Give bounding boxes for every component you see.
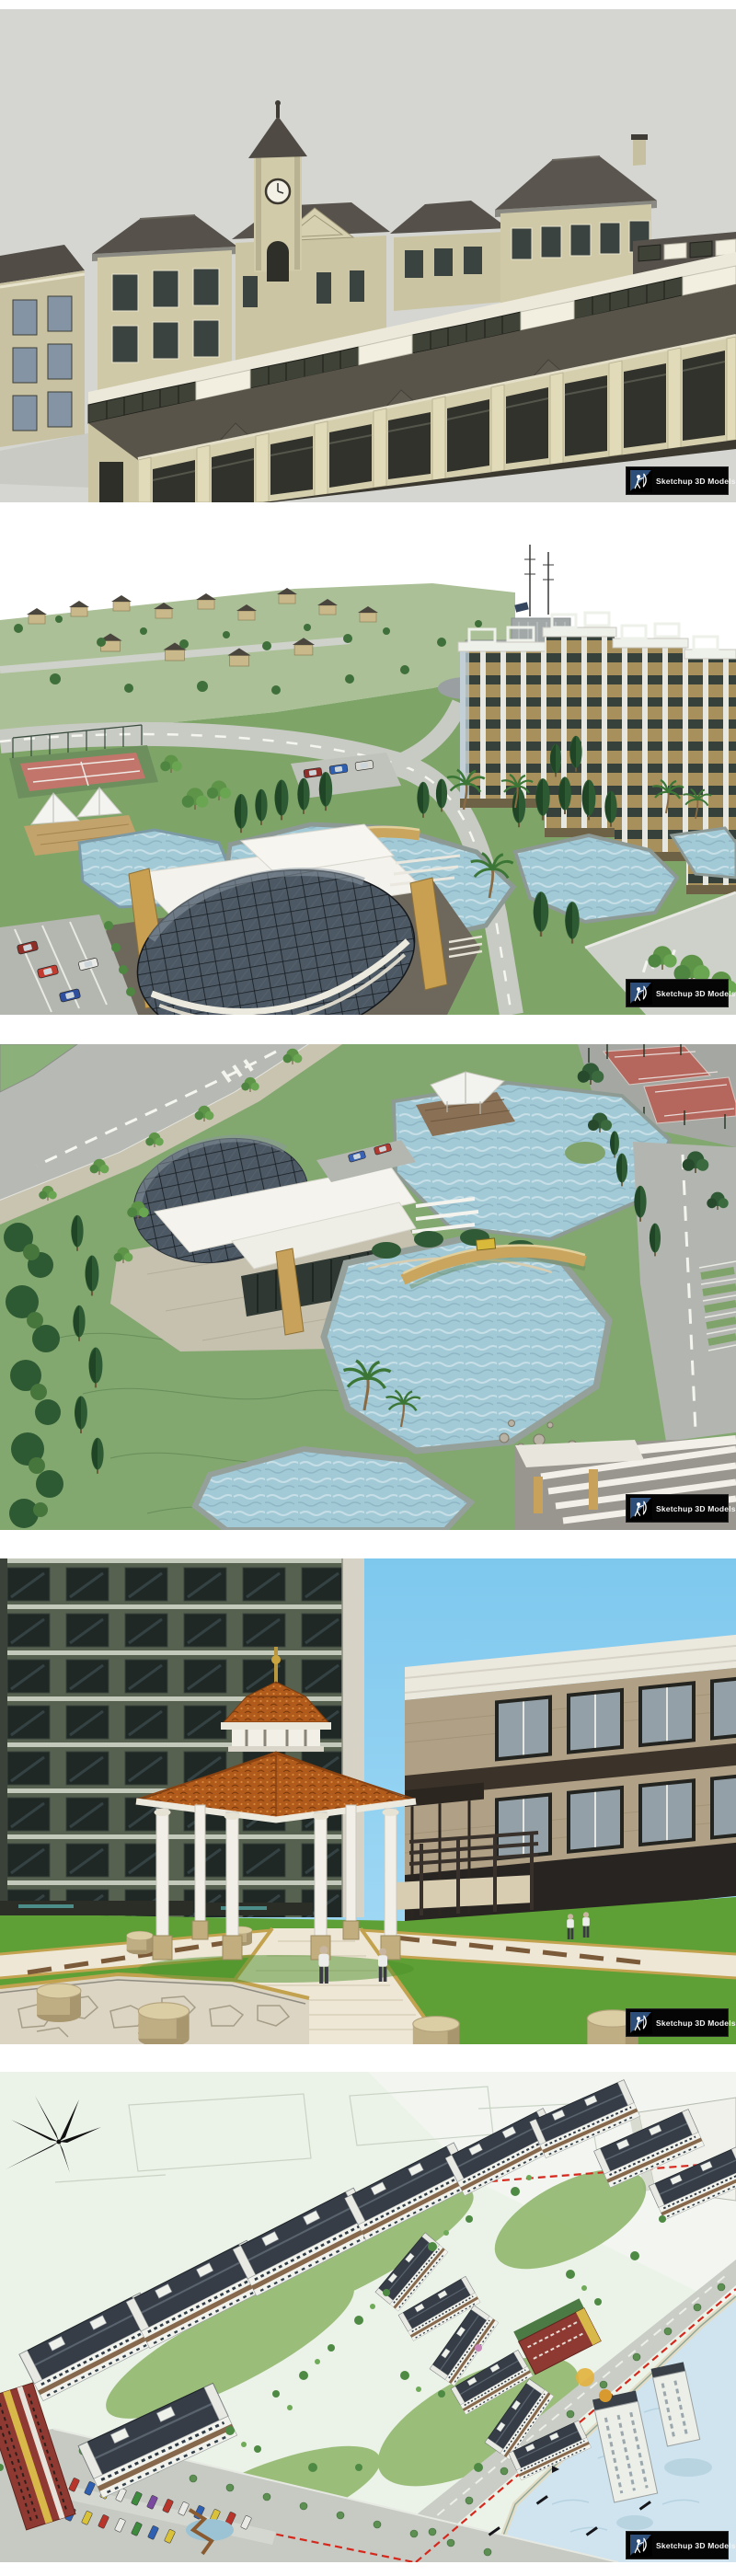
sketchup-watermark-badge: Sketchup 3D Models (626, 2008, 729, 2037)
gallery-image-courtyard-gazebo[interactable]: Sketchup 3D Models (0, 1558, 736, 2044)
sketchup-watermark-badge: Sketchup 3D Models (626, 466, 729, 495)
watermark-label: Sketchup 3D Models (656, 2541, 736, 2550)
render-classical-street (0, 9, 736, 502)
watermark-label: Sketchup 3D Models (656, 2018, 736, 2028)
sketchup-archer-logo-icon (629, 2011, 652, 2034)
back-building-left (0, 245, 85, 447)
sketchup-watermark-badge: Sketchup 3D Models (626, 979, 729, 1007)
sketchup-archer-logo-icon (629, 1497, 652, 1520)
render-courtyard-gazebo (0, 1558, 736, 2044)
tower-c (613, 624, 688, 861)
watermark-label: Sketchup 3D Models (656, 989, 736, 998)
gallery-image-clubhouse-pools[interactable]: Sketchup 3D Models (0, 1044, 736, 1530)
render-riverside-masterplan (0, 2072, 736, 2562)
watermark-label: Sketchup 3D Models (656, 1504, 736, 1513)
sketchup-watermark-badge: Sketchup 3D Models (626, 1494, 729, 1523)
gallery-image-community-lagoon[interactable]: Sketchup 3D Models (0, 532, 736, 1015)
gazebo-shadow (138, 1955, 414, 1983)
gallery-image-riverside-masterplan[interactable]: Sketchup 3D Models (0, 2072, 736, 2562)
watermark-label: Sketchup 3D Models (656, 477, 736, 486)
render-clubhouse-pools (0, 1044, 736, 1530)
gold-finial (271, 1655, 281, 1664)
gallery-image-classical-street[interactable]: Sketchup 3D Models (0, 9, 736, 502)
sketchup-watermark-badge: Sketchup 3D Models (626, 2531, 729, 2559)
render-community-lagoon (0, 532, 736, 1015)
clerestory (232, 1730, 320, 1746)
sketchup-archer-logo-icon (629, 2534, 652, 2557)
sketchup-archer-logo-icon (629, 982, 652, 1005)
sketchup-archer-logo-icon (629, 469, 652, 492)
